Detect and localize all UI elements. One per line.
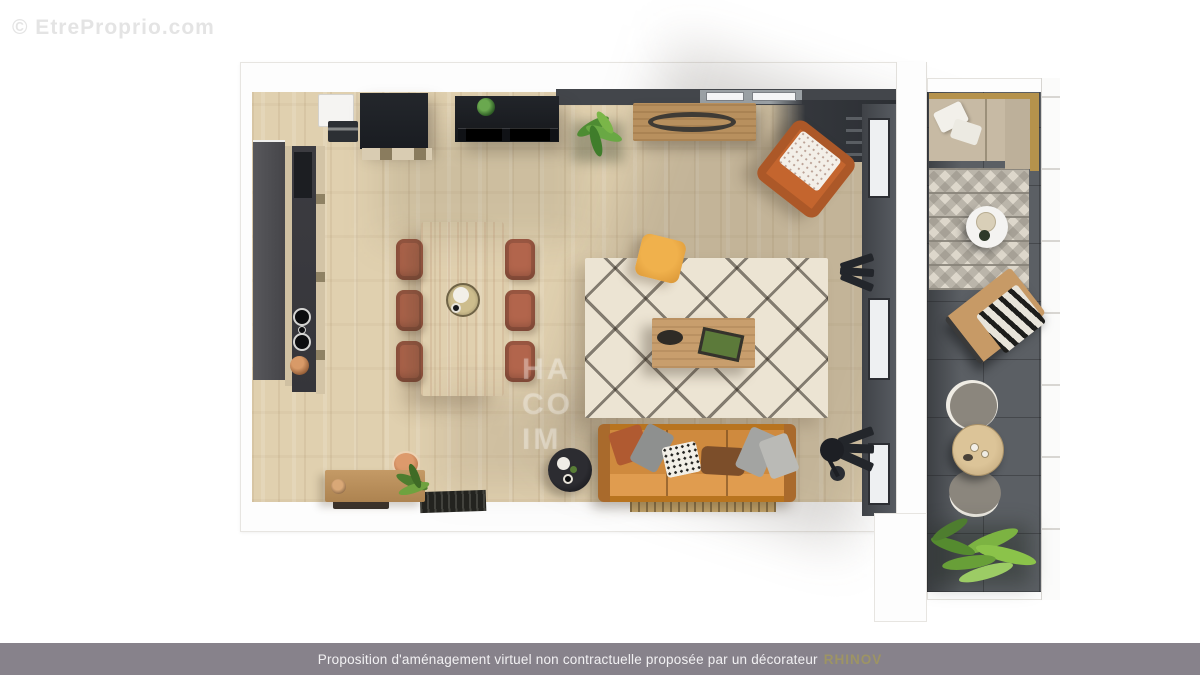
copper-pot: [290, 356, 309, 375]
counter-sink: [294, 152, 312, 198]
top-window: [706, 92, 744, 101]
cup: [451, 303, 461, 313]
dining-chair: [505, 239, 535, 280]
cup: [970, 443, 979, 452]
top-window: [752, 92, 796, 101]
bistro-chair: [950, 383, 997, 429]
bench-gold-frame: [929, 93, 1038, 99]
cup: [981, 450, 989, 458]
coffee-table-tray: [657, 330, 683, 345]
plant-sprig: [570, 466, 577, 473]
counter-drawer-edge: [316, 146, 325, 394]
sideboard-oval-inlay: [648, 112, 736, 132]
shoe-grate: [420, 490, 487, 513]
cup: [563, 474, 573, 484]
agency-watermark-line: IM: [522, 422, 573, 457]
window: [868, 298, 890, 380]
footer-disclaimer-text: Proposition d'aménagement virtuel non co…: [318, 652, 818, 667]
plate: [557, 457, 570, 470]
kitchen-counter-slab: [253, 140, 285, 380]
cooktop-burner: [293, 333, 311, 351]
kitchen-sink-unit: [328, 121, 358, 142]
table-item: [963, 454, 973, 461]
side-table-tray: [976, 212, 996, 232]
side-table-plant: [979, 230, 990, 241]
kitchen-wall-cabinet-front: [458, 128, 558, 141]
divider-wall: [896, 62, 927, 517]
dining-chair: [396, 341, 423, 382]
kitchen-cabinet-black: [360, 93, 428, 149]
dining-chair: [396, 290, 423, 331]
window: [868, 118, 890, 198]
floor-lamp-head: [820, 438, 844, 462]
agency-watermark-line: HA: [522, 352, 573, 387]
counter-wood-edge: [285, 146, 292, 386]
kitchen-cabinet-front: [362, 148, 432, 160]
footer-disclaimer-bar: Proposition d'aménagement virtuel non co…: [0, 643, 1200, 675]
dining-chair: [505, 290, 535, 331]
agency-watermark: HA CO IM: [522, 352, 573, 457]
site-watermark: © EtreProprio.com: [12, 16, 215, 40]
floorplan-render: © EtreProprio.com HA CO IM: [0, 0, 1200, 675]
agency-watermark-line: CO: [522, 387, 573, 422]
bench-bowl: [331, 479, 346, 494]
cooktop-knob: [298, 326, 306, 334]
dining-chair: [396, 239, 423, 280]
balcony-railing: [1041, 78, 1060, 600]
divider-wall-extension: [874, 513, 927, 622]
cooktop-burner: [293, 308, 311, 326]
plate: [453, 287, 469, 303]
potted-plant-small: [477, 98, 495, 116]
bench-gold-frame: [1030, 93, 1039, 171]
footer-brand-rhinov: RHINOV: [824, 652, 883, 667]
